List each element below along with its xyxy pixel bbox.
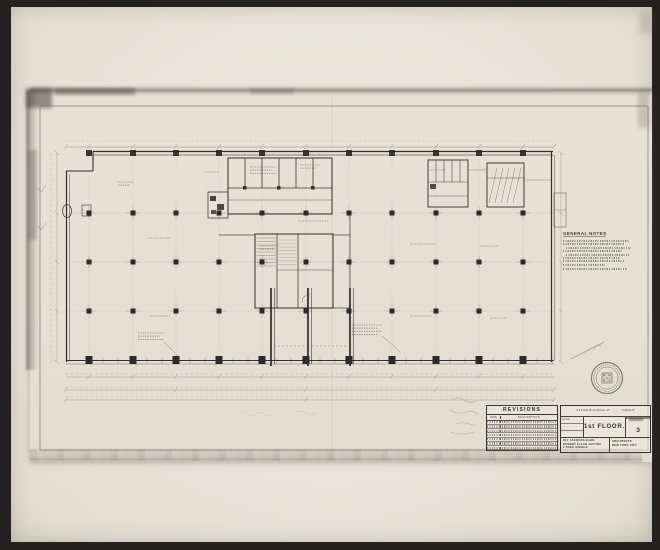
revisions-table: REVISIONS DATE DESCRIPTION: [486, 405, 558, 451]
sheet-number: 3: [636, 427, 640, 434]
note-line: [563, 264, 605, 266]
note-line: [563, 268, 627, 270]
note-line: [566, 247, 631, 249]
firm-name-band: ELY JACQUES KAHN ROBERT ALLAN JACOBS 2 P…: [561, 437, 650, 452]
firm-right: ARCHITECTS NEW YORK CITY: [610, 438, 650, 452]
general-notes-block: GENERAL NOTES: [563, 222, 635, 271]
title-block-left-column: SCALE ···· ····: [561, 417, 584, 437]
firm-city: NEW YORK CITY: [612, 444, 650, 448]
scale-cell: SCALE: [561, 417, 583, 424]
project-line-2: ··· ···· ········ ··· ·········: [561, 412, 650, 415]
note-line: [563, 250, 623, 252]
drawn-cell: ····: [561, 424, 583, 431]
revisions-date-header: DATE: [487, 416, 501, 419]
revisions-title: REVISIONS: [487, 406, 557, 415]
sheet-number-cell: 3: [626, 419, 650, 437]
general-notes-title: GENERAL NOTES: [563, 231, 606, 237]
floor-plan-linework: [0, 0, 660, 550]
photographed-floor-plan: GENERAL NOTES REVISIONS DATE DESCRIPTION…: [0, 0, 660, 550]
firm-left: ELY JACQUES KAHN ROBERT ALLAN JACOBS 2 P…: [561, 438, 610, 452]
revision-row: [487, 446, 557, 450]
note-line: [563, 257, 620, 259]
title-block-right-column: 3: [625, 417, 650, 437]
floor-label: 1st FLOOR.: [584, 424, 625, 430]
note-line: [563, 240, 629, 242]
note-line: [566, 254, 629, 256]
revisions-description-header: DESCRIPTION: [501, 416, 557, 419]
project-name-cell: OFFICE BUILDING AT ········ AVENUE ··· ·…: [561, 406, 650, 417]
sheet-title-cell: 1st FLOOR.: [584, 417, 625, 437]
note-line: [563, 243, 625, 245]
firm-address: 2 PARK AVENUE: [563, 446, 609, 450]
note-line: [563, 260, 624, 262]
title-block: OFFICE BUILDING AT ········ AVENUE ··· ·…: [560, 405, 651, 453]
